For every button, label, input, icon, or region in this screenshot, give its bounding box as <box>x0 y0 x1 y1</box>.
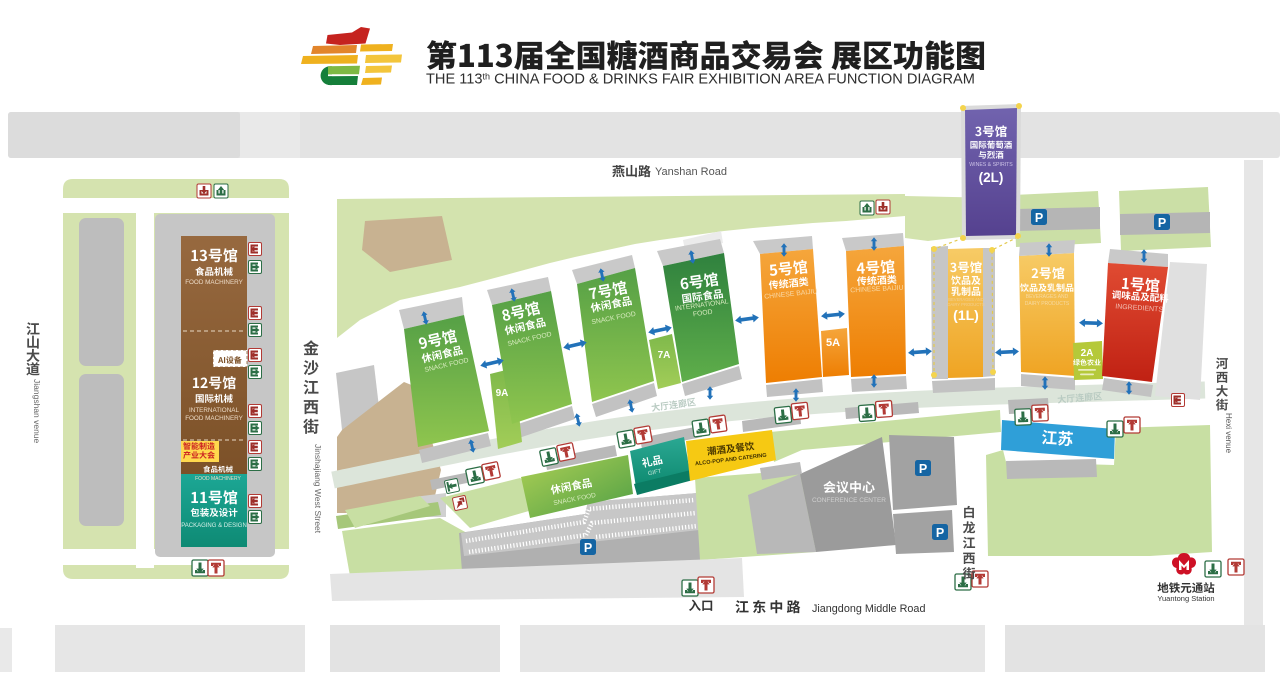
svg-text:FOOD MACHINERY: FOOD MACHINERY <box>185 279 243 286</box>
svg-text:WINES & SPIRITS: WINES & SPIRITS <box>969 162 1013 168</box>
svg-text:PACKAGING & DESIGN: PACKAGING & DESIGN <box>181 523 247 529</box>
svg-text:2A: 2A <box>1081 348 1094 359</box>
svg-text:Jinshajiang West Street: Jinshajiang West Street <box>313 444 323 534</box>
svg-text:9A: 9A <box>496 388 509 399</box>
svg-text:CONFERENCE CENTER: CONFERENCE CENTER <box>812 497 886 504</box>
svg-text:FOOD MACHINERY: FOOD MACHINERY <box>185 415 243 422</box>
svg-text:Yuantong Station: Yuantong Station <box>1157 594 1214 603</box>
svg-text:BEVERAGES AND: BEVERAGES AND <box>1026 294 1069 300</box>
svg-text:Jiangdong Middle Road: Jiangdong Middle Road <box>812 603 925 615</box>
svg-text:FOOD MACHINERY: FOOD MACHINERY <box>195 476 241 482</box>
svg-text:7A: 7A <box>658 350 671 361</box>
svg-text:DAIRY PRODUCTS: DAIRY PRODUCTS <box>1025 301 1070 307</box>
svg-text:5A: 5A <box>826 337 840 349</box>
svg-text:Hexi venue: Hexi venue <box>1224 413 1233 454</box>
svg-text:Yanshan Road: Yanshan Road <box>655 166 727 178</box>
svg-text:INTERNATIONAL: INTERNATIONAL <box>189 407 239 414</box>
svg-text:(1L): (1L) <box>953 307 979 323</box>
svg-text:(2L): (2L) <box>979 170 1004 185</box>
svg-text:Jiangshan venue: Jiangshan venue <box>32 379 42 444</box>
svg-text:THE 113th CHINA FOOD & DRINKS: THE 113th CHINA FOOD & DRINKS FAIR EXHIB… <box>426 72 975 88</box>
